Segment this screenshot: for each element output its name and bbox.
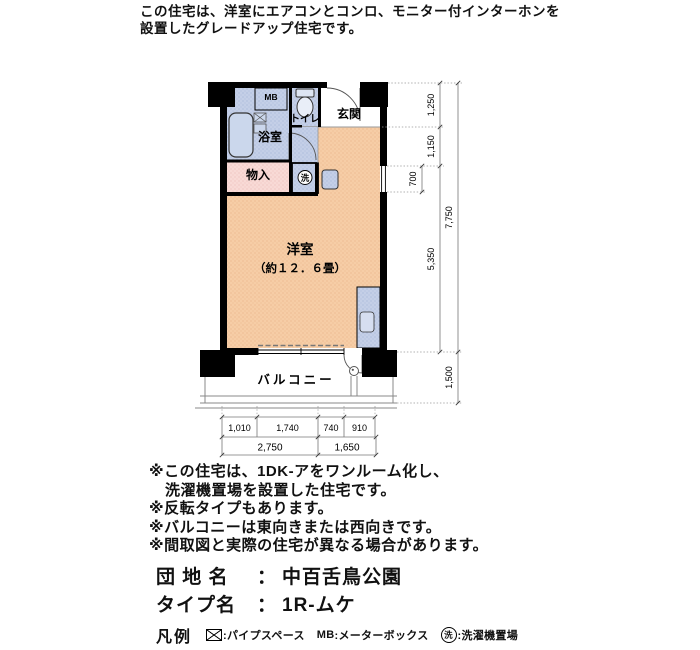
type-name-value: 1R-ムケ [282, 590, 356, 617]
description-line2: 設置したグレードアップ住宅です。 [140, 21, 580, 38]
floorplan-page: この住宅は、洋室にエアコンとコンロ、モニター付インターホンを 設置したグレードア… [0, 0, 700, 650]
legend-washer-text: :洗濯機置場 [458, 627, 518, 643]
dim-1500: 1,500 [444, 366, 454, 389]
bathtub [229, 113, 253, 157]
label-toilet: トイレ [290, 113, 320, 125]
dim-1650: 1,650 [334, 443, 359, 454]
note-line1: ※この住宅は、1DK-アをワンルーム化し、 [149, 463, 488, 482]
pipe-space-icon [206, 629, 222, 641]
label-washer: 洗 [301, 173, 310, 183]
dim-5350: 5,350 [426, 248, 436, 271]
balcony-drain-dot [352, 369, 354, 371]
meter-box-symbol: MB [317, 629, 335, 641]
legend-title: 凡例 [156, 623, 192, 647]
label-storage: 物入 [246, 167, 270, 182]
legend-meter-box: MB :メーターボックス [317, 627, 429, 643]
legend-row: 凡例 :パイプスペース MB :メーターボックス 洗 :洗濯機置場 [156, 623, 530, 647]
note-line5: ※間取図と実際の住宅が異なる場合があります。 [149, 537, 488, 556]
type-name-label: タイプ名 [156, 590, 252, 617]
property-info: 団 地 名 ： 中百舌鳥公園 タイプ名 ： 1R-ムケ [156, 562, 402, 618]
dim-1740: 1,740 [276, 423, 299, 433]
type-name-row: タイプ名 ： 1R-ムケ [156, 590, 402, 618]
estate-name-label: 団 地 名 [156, 562, 252, 589]
estate-name-row: 団 地 名 ： 中百舌鳥公園 [156, 562, 402, 590]
kitchen-sink [360, 312, 374, 332]
label-main-room: 洋室 [287, 241, 314, 257]
notes-block: ※この住宅は、1DK-アをワンルーム化し、 洗濯機置場を設置した住宅です。 ※反… [149, 463, 488, 556]
dim-1250: 1,250 [426, 94, 436, 117]
wash-basin [322, 170, 338, 189]
dim-910: 910 [352, 423, 367, 433]
legend-mb-text: :メーターボックス [334, 627, 428, 643]
note-line4: ※バルコニーは東向きまたは西向きです。 [149, 519, 488, 538]
dim-7750: 7,750 [444, 206, 454, 229]
note-line2: 洗濯機置場を設置した住宅です。 [165, 482, 488, 501]
label-room-size: （約１２．６畳） [254, 261, 346, 275]
dim-1150: 1,150 [426, 135, 436, 158]
legend-washer: 洗 :洗濯機置場 [441, 627, 518, 643]
note-line3: ※反転タイプもあります。 [149, 500, 488, 519]
washer-circle-icon: 洗 [441, 627, 457, 643]
dim-1010: 1,010 [228, 423, 251, 433]
dim-2750: 2,750 [257, 443, 282, 454]
dim-740: 740 [323, 423, 338, 433]
label-bathroom: 浴室 [258, 129, 282, 144]
type-name-separator: ： [252, 590, 282, 617]
balcony-drain [350, 367, 359, 376]
dim-700: 700 [408, 171, 418, 186]
legend-pipe-text: :パイプスペース [223, 627, 305, 643]
label-entrance: 玄関 [337, 106, 361, 121]
label-meter-box: MB [264, 92, 277, 102]
label-balcony: バルコニー [257, 373, 334, 387]
legend-pipe-space: :パイプスペース [206, 627, 305, 643]
estate-name-separator: ： [252, 562, 282, 589]
description-line1: この住宅は、洋室にエアコンとコンロ、モニター付インターホンを [140, 4, 580, 21]
toilet-tank [296, 89, 314, 97]
header-description: この住宅は、洋室にエアコンとコンロ、モニター付インターホンを 設置したグレードア… [140, 4, 580, 37]
floorplan-drawing: MB トイレ 玄関 浴室 物入 洋室 （約１２．６畳） バルコニー 洗 1,25… [150, 60, 480, 460]
estate-name-value: 中百舌鳥公園 [282, 562, 402, 589]
